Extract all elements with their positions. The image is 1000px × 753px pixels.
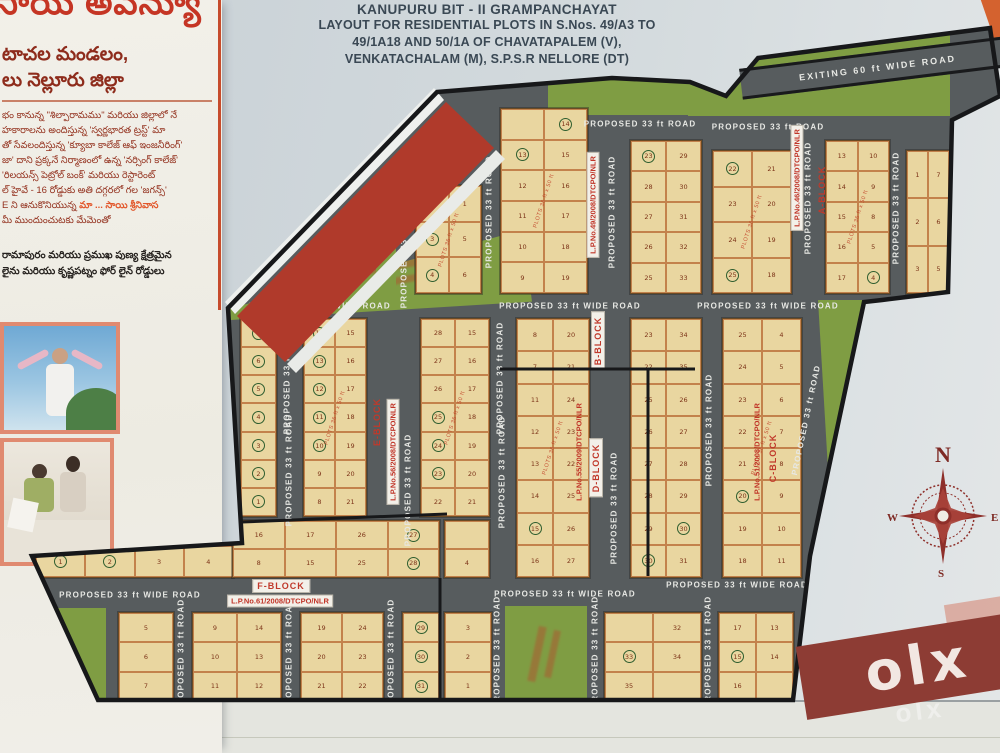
plot-number: 27	[644, 460, 652, 468]
plot-number: 19	[468, 442, 476, 450]
plot-number: 8	[317, 498, 321, 506]
plot: 12	[237, 672, 281, 701]
plot: 3	[135, 546, 184, 577]
title-line: 49/1A18 AND 50/1A OF CHAVATAPALEM (V),	[252, 34, 722, 51]
plot-block-m4: 23342235252626272728282929303031	[630, 318, 702, 578]
plot: 1	[907, 151, 928, 198]
plot: 23	[421, 460, 455, 488]
plot-number-circled: 3	[426, 233, 439, 246]
plot: 27	[631, 202, 666, 232]
plot: 2	[907, 198, 928, 245]
plot: 25	[336, 549, 388, 577]
plot-number: 26	[358, 531, 366, 539]
plot: 1	[449, 186, 482, 222]
plot: 14	[304, 319, 335, 347]
plot-number: 20	[567, 331, 575, 339]
plot: 7	[928, 151, 949, 198]
plot: 33	[605, 642, 653, 671]
photo-detail	[70, 348, 103, 370]
block-label-c: C-BLOCK	[768, 434, 778, 483]
plot: 24	[342, 613, 383, 642]
plot-number: 35	[679, 363, 687, 371]
photo-detail	[66, 456, 80, 472]
plot-number: 26	[679, 396, 687, 404]
plot: 24	[713, 222, 752, 258]
plot: 27	[388, 521, 440, 549]
plot-number: 12	[255, 682, 263, 690]
plot: 27	[421, 347, 455, 375]
plot-number: 23	[728, 200, 736, 208]
plot: 26	[631, 232, 666, 262]
plot-number: 29	[644, 525, 652, 533]
plot-number: 15	[468, 329, 476, 337]
plot-number: 18	[346, 413, 354, 421]
plot-number: 26	[567, 525, 575, 533]
plot: 24	[723, 351, 762, 383]
road-label: PROPOSED 33 ft ROAD	[285, 414, 294, 527]
plot-number: 19	[738, 525, 746, 533]
plot-number: 11	[531, 396, 539, 404]
road-label: PROPOSED 33 ft ROAD	[404, 434, 413, 547]
plot-number: 9	[779, 492, 783, 500]
plot: 7	[241, 319, 276, 347]
paragraph-line: తో సేవలందిస్తున్న 'క్యూబా కాలేజ్ ఆఫ్ ఇంజ…	[2, 138, 216, 153]
plot: 6	[449, 257, 482, 293]
plot: 8	[517, 319, 553, 351]
plot-number-circled: 14	[559, 118, 572, 131]
plot-number-circled: 15	[529, 522, 542, 535]
plot-number: 17	[838, 274, 846, 282]
plot-number: 6	[463, 271, 467, 279]
plot: 5	[119, 613, 173, 642]
plot-number: 24	[358, 624, 366, 632]
plot: 15	[285, 549, 337, 577]
plot-block-a2: 1310149158165174PLOTS 36 ft x 50 ft	[825, 140, 890, 294]
plot: 19	[752, 222, 791, 258]
road-label: PROPOSED 33 ft WIDE ROAD	[499, 302, 641, 311]
plot: 26	[336, 521, 388, 549]
plot-number: 26	[644, 428, 652, 436]
plot: 14	[237, 613, 281, 642]
road-label: PROPOSED 33 ft ROAD	[712, 123, 825, 132]
plot-number-circled: 1	[54, 555, 67, 568]
plot-number: 9	[520, 274, 524, 282]
plot-number: 28	[644, 492, 652, 500]
plot: 13	[826, 141, 858, 171]
plot: 18	[752, 258, 791, 294]
photo-detail	[66, 388, 120, 434]
photo-detail	[32, 464, 47, 479]
plot: 10	[501, 232, 544, 263]
plot-number: 13	[838, 152, 846, 160]
plot-number-circled: 13	[313, 355, 326, 368]
plot-number: 12	[518, 182, 526, 190]
plot: 4	[241, 403, 276, 431]
plot-block-g0: 4	[444, 520, 490, 578]
plot-number-circled: 28	[407, 557, 420, 570]
plot-number: 21	[767, 165, 775, 173]
plot-number: 18	[738, 557, 746, 565]
plot: 18	[335, 403, 366, 431]
plot-number: 5	[144, 624, 148, 632]
plot-number-circled: 22	[726, 162, 739, 175]
plot-number-circled: 25	[432, 411, 445, 424]
road-label: PROPOSED 33 ft ROAD	[705, 374, 714, 487]
plot-number: 9	[317, 470, 321, 478]
plot: 8	[858, 202, 890, 232]
plot: 35	[605, 672, 653, 701]
layout-brochure-photo: సాయి అవెన్యూ టాచల మండలం, లు నెల్లూరు జిల…	[0, 0, 1000, 753]
plot-number: 25	[644, 274, 652, 282]
plot-number: 3	[466, 624, 470, 632]
plot: 29	[631, 513, 666, 545]
plot-number: 13	[255, 653, 263, 661]
plot-number: 20	[468, 470, 476, 478]
plot: 32	[666, 232, 701, 262]
plot-number-circled: 29	[415, 621, 428, 634]
plot: 13	[501, 140, 544, 171]
road-label: PROPOSED 33 ft WIDE ROAD	[249, 302, 391, 311]
plot-number: 22	[738, 428, 746, 436]
plot: 5	[449, 222, 482, 258]
plot: 6	[119, 642, 173, 671]
plot: 2	[445, 642, 491, 671]
plot: 9	[501, 262, 544, 293]
plot-number: 18	[561, 243, 569, 251]
plot-number: 8	[257, 559, 261, 567]
plot: 30	[631, 545, 666, 577]
plot-number-circled: 7	[252, 327, 265, 340]
plot-number: 29	[679, 492, 687, 500]
plot-number: 1	[466, 682, 470, 690]
road-label: PROPOSED 33 ft ROAD	[610, 452, 619, 565]
plot: 34	[666, 319, 701, 351]
plot: 4	[858, 263, 890, 293]
plot-number: 19	[317, 624, 325, 632]
plot: 17	[719, 613, 756, 642]
plot: 6	[762, 384, 801, 416]
plot-number: 27	[434, 357, 442, 365]
plot-number: 17	[468, 385, 476, 393]
compass-rose: N W E S	[885, 438, 1000, 578]
plot: 20	[553, 319, 589, 351]
plot-number: 28	[679, 460, 687, 468]
paragraph-line: జా' దాని ప్రక్కనే నిర్మాణంలో ఉన్న 'నర్సి…	[2, 153, 216, 168]
plot: 12	[501, 170, 544, 201]
block-label-e: E-BLOCK	[372, 398, 382, 446]
plot: 31	[403, 672, 439, 701]
plot: 3	[416, 222, 449, 258]
lp-label-61: L.P.No.61/2008/DTCPO/NLR	[227, 595, 333, 608]
plot-number: 16	[561, 182, 569, 190]
plot-number: 10	[869, 152, 877, 160]
location-line: లు నెల్లూరు జిల్లా	[2, 68, 216, 94]
plot: 23	[342, 642, 383, 671]
plot: 16	[335, 347, 366, 375]
lp-label-56: L.P.No.56/2008/DTCPO/NLR	[387, 399, 400, 505]
block-label-d: D-BLOCK	[589, 439, 603, 498]
plot: 16	[455, 347, 489, 375]
plot-number-circled: 2	[103, 555, 116, 568]
plot-number: 11	[777, 557, 785, 565]
compass-south-label: S	[938, 568, 944, 578]
plot-number: 16	[838, 243, 846, 251]
plot-number: 22	[644, 363, 652, 371]
plot-number: 22	[358, 682, 366, 690]
plot: 9	[193, 613, 237, 642]
plot: 7	[517, 351, 553, 383]
plot: 25	[723, 319, 762, 351]
plot: 17	[544, 201, 587, 232]
plot: 1	[445, 672, 491, 701]
plot: 30	[666, 171, 701, 201]
plot: 21	[455, 488, 489, 516]
couple-photo	[0, 438, 114, 566]
plot-number: 17	[733, 624, 741, 632]
plot-number-circled: 4	[867, 271, 880, 284]
plot-block-g2: 91410131112	[192, 612, 282, 702]
plot-block-m2: 2815271626172518241923202221PLOTS 36 ft …	[420, 318, 490, 517]
plot: 16	[544, 170, 587, 201]
plot: 31	[666, 202, 701, 232]
plot-number-circled: 25	[726, 269, 739, 282]
girl-photo	[0, 322, 120, 434]
plot: 22	[421, 488, 455, 516]
plot-number: 18	[767, 271, 775, 279]
plot: 27	[666, 416, 701, 448]
plot-number: 5	[871, 243, 875, 251]
plot-number: 26	[644, 243, 652, 251]
plot: 23	[631, 141, 666, 171]
plot-block-m5: 25424523622721820919101811PLOTS 36 ft x …	[722, 318, 802, 578]
sidebar-accent-line	[218, 0, 221, 310]
plot: 27	[553, 545, 589, 577]
plot: 6	[241, 347, 276, 375]
plot: 9	[858, 171, 890, 201]
block-label-a: A-BLOCK	[817, 166, 827, 215]
plot-number: 29	[679, 152, 687, 160]
plot: 19	[455, 432, 489, 460]
plot-number-circled: 12	[313, 383, 326, 396]
plot-number-circled: 30	[677, 522, 690, 535]
lp-label-49: L.P.No.49/2008/DTCPO/NLR	[587, 152, 600, 258]
plot-number: 2	[430, 200, 434, 208]
plot-number: 34	[673, 653, 681, 661]
plot: 16	[517, 545, 553, 577]
plot-number: 14	[255, 624, 263, 632]
plot: 17	[826, 263, 858, 293]
plot-block-a1: 2221232024192518PLOTS 36 ft x 50 ft	[712, 150, 792, 294]
plot-number: 21	[738, 460, 746, 468]
park-label-smudge	[544, 630, 561, 678]
connectivity-lines: రామాపురం మరియు ప్రముఖ పుణ్య క్షేత్రమైన ల…	[2, 248, 220, 280]
plot: 6	[928, 198, 949, 245]
plot: 14	[544, 109, 587, 140]
plot-number: 7	[144, 682, 148, 690]
block-label-f: F-BLOCK	[252, 579, 310, 593]
plot	[756, 672, 793, 701]
plot: 12	[517, 416, 553, 448]
compass-east-label: E	[991, 512, 998, 524]
venture-heading: సాయి అవెన్యూ	[0, 0, 222, 31]
plot-number-circled: 30	[415, 650, 428, 663]
venture-location-lines: టాచల మండలం, లు నెల్లూరు జిల్లా	[2, 42, 216, 94]
paragraph-line: భం కానున్న "శిల్పారామము" మరియు జిల్లాలో …	[2, 108, 216, 123]
plot-number: 4	[465, 559, 469, 567]
plot: 32	[653, 613, 701, 642]
plot: 26	[421, 375, 455, 403]
plot: 17	[335, 375, 366, 403]
divider	[2, 100, 212, 102]
plot: 23	[713, 187, 752, 223]
plot: 14	[826, 171, 858, 201]
plot: 15	[544, 140, 587, 171]
plot-number: 32	[673, 624, 681, 632]
plot-number: 12	[531, 428, 539, 436]
lp-label-51: L.P.No.51/2008/DTCPO/NLR	[753, 403, 762, 501]
road-label: PROPOSED 33 ft WIDE ROAD	[697, 302, 839, 311]
plot: 4	[762, 319, 801, 351]
plot-number: 19	[561, 274, 569, 282]
plot-number: 6	[779, 396, 783, 404]
plot: 5	[928, 246, 949, 293]
plot-number: 6	[936, 218, 940, 226]
plot-number: 31	[679, 557, 687, 565]
plot: 2	[241, 460, 276, 488]
plot: 35	[666, 351, 701, 383]
plot-block-g1: 567	[118, 612, 174, 702]
plot: 23	[553, 416, 589, 448]
plot-number: 19	[346, 442, 354, 450]
plot: 10	[304, 432, 335, 460]
plot: 19	[301, 613, 342, 642]
road-label: PROPOSED 33 ft ROAD	[591, 596, 600, 709]
plot-number: 16	[346, 357, 354, 365]
plot: 22	[553, 448, 589, 480]
plot-number: 22	[434, 498, 442, 506]
lp-label-46: L.P.No.46/2008/DTCPO/NLR	[791, 125, 804, 231]
plot-number: 31	[679, 213, 687, 221]
plot-number: 7	[779, 428, 783, 436]
plot-number: 8	[533, 331, 537, 339]
plot: 12	[304, 375, 335, 403]
photo-detail	[52, 348, 68, 364]
plot-number: 17	[346, 385, 354, 393]
plot-number: 4	[206, 558, 210, 566]
plot-block-m0: 7654321	[240, 318, 277, 517]
plot-number: 21	[346, 498, 354, 506]
plot: 22	[342, 672, 383, 701]
plot: 26	[631, 416, 666, 448]
plot-number: 28	[644, 183, 652, 191]
plot-number: 11	[211, 682, 219, 690]
plot: 15	[455, 319, 489, 347]
plot: 4	[445, 549, 489, 577]
plot-number: 24	[728, 236, 736, 244]
plot: 28	[388, 549, 440, 577]
plot-number-circled: 13	[516, 148, 529, 161]
plot-number: 5	[463, 235, 467, 243]
plot: 7	[119, 672, 173, 701]
plot-number: 35	[625, 682, 633, 690]
plot: 5	[858, 232, 890, 262]
plot-number: 25	[738, 331, 746, 339]
plot: 29	[666, 141, 701, 171]
plot-number: 23	[358, 653, 366, 661]
plot: 24	[553, 384, 589, 416]
plot: 2	[416, 186, 449, 222]
plot-number: 27	[679, 428, 687, 436]
plot-number-circled: 10	[313, 439, 326, 452]
plot: 22	[631, 351, 666, 383]
plot: 30	[666, 513, 701, 545]
plot-number: 21	[317, 682, 325, 690]
plot-number: 5	[936, 265, 940, 273]
plot: 14	[517, 480, 553, 512]
plot: 20	[335, 460, 366, 488]
plot: 17	[455, 375, 489, 403]
paragraph-line: ల్ హైవే - 16 రోడ్డుకు అతి దగ్గరలో గల 'జగ…	[2, 183, 216, 198]
plot-number: 16	[468, 357, 476, 365]
title-line: KANUPURU BIT - II GRAMPANCHAYAT	[252, 2, 722, 17]
photo-detail	[16, 348, 49, 370]
plot: 25	[553, 480, 589, 512]
plot: 25	[421, 403, 455, 431]
plot-block-g5: 321	[444, 612, 492, 702]
road-label: PROPOSED 33 ft ROAD	[387, 599, 396, 712]
plot-number: 26	[434, 385, 442, 393]
plot: 18	[455, 403, 489, 431]
park-area	[505, 606, 587, 702]
plot-number-circled: 2	[252, 467, 265, 480]
plot-number: 14	[838, 183, 846, 191]
paragraph-line: E ని ఆనుకొనియున్న మా ... సాయి శ్రీనివాస	[2, 198, 216, 213]
plot: 15	[719, 642, 756, 671]
olx-logo-text: olx	[860, 626, 974, 705]
road-label: PROPOSED 33 ft ROAD	[177, 599, 186, 712]
paragraph-line: 'రిలయన్స్ పెట్రోల్ బంక్' మరియు రెస్టారెం…	[2, 168, 216, 183]
plot: 13	[756, 613, 793, 642]
plot: 28	[421, 319, 455, 347]
plot-number-circled: 23	[642, 150, 655, 163]
plot: 15	[517, 513, 553, 545]
plot-number: 15	[838, 213, 846, 221]
plot: 9	[304, 460, 335, 488]
plot: 13	[517, 448, 553, 480]
plot-number: 1	[463, 200, 467, 208]
plot-number-circled: 15	[731, 650, 744, 663]
plot-number: 20	[767, 200, 775, 208]
plot: 20	[455, 460, 489, 488]
road-label: PROPOSED 33 ft ROAD	[485, 156, 494, 269]
plot-number: 14	[770, 653, 778, 661]
plot: 1	[241, 488, 276, 516]
plot: 13	[304, 347, 335, 375]
plot-number: 27	[567, 557, 575, 565]
plot-number: 19	[767, 236, 775, 244]
plot-number: 25	[358, 559, 366, 567]
plot: 25	[631, 263, 666, 293]
plot-number: 7	[533, 363, 537, 371]
plot-number: 5	[779, 363, 783, 371]
compass-north-label: N	[935, 442, 951, 467]
plot: 10	[193, 642, 237, 671]
plot-number: 2	[915, 218, 919, 226]
paragraph-line: హకారాలను అందిస్తున్న 'స్వర్ణభారత ట్రస్ట్…	[2, 123, 216, 138]
plot: 21	[335, 488, 366, 516]
plot: 20	[752, 187, 791, 223]
plot: 19	[723, 513, 762, 545]
